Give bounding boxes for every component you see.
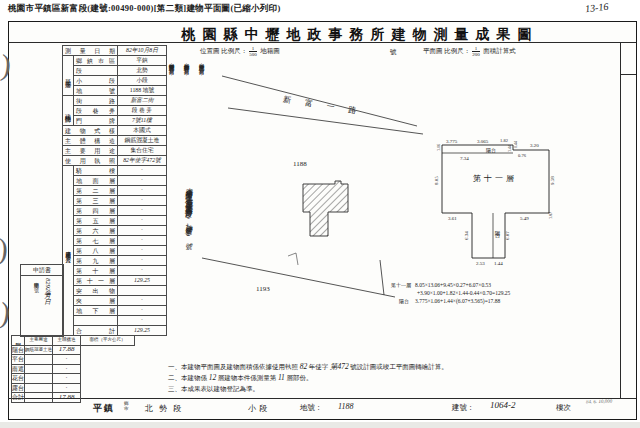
floor-plan-outline bbox=[442, 145, 549, 258]
floor-row: 建築面積（平方公尺）騎樓· bbox=[63, 166, 167, 176]
plan-map-label: 平面圖 bbox=[423, 47, 443, 54]
table-row: 使用執照82年使字472號 bbox=[63, 156, 167, 166]
annex-use: 露台 bbox=[12, 383, 25, 393]
annex-structure bbox=[25, 383, 53, 393]
annex-use: 平台 bbox=[12, 355, 25, 365]
bottom-building-label: 建號： bbox=[452, 403, 475, 413]
note-line: 一、本建物平面圖及建物面積係依據使用執照 82 年使字 第472 號設計圖或竣工… bbox=[168, 361, 613, 372]
annex-structure bbox=[25, 355, 53, 365]
dim-left: 8.05 bbox=[434, 176, 439, 185]
bottom-building-number: 1064-2 bbox=[490, 400, 516, 410]
cadastre-map-label: 地籍圖 bbox=[260, 47, 280, 54]
annex-use: 陽台 bbox=[12, 345, 25, 355]
floor-row: 第八層· bbox=[63, 246, 167, 256]
annex-area: · bbox=[53, 355, 81, 365]
dim-right-step: 1.87 bbox=[548, 212, 553, 219]
dim-tab-right: 6.07 bbox=[505, 231, 510, 240]
right-box-line bbox=[620, 74, 636, 75]
dim-balcony-depth: 1.44 bbox=[507, 145, 512, 152]
floor-row: 第四層· bbox=[63, 206, 167, 216]
floor-label: 第九層 bbox=[74, 256, 118, 266]
table-row: 主要用途集合住宅 bbox=[63, 146, 167, 156]
floor-label: 夾層 bbox=[74, 296, 118, 306]
area-calc-label: 面積計算式 bbox=[483, 47, 516, 54]
floor-area-value: · bbox=[118, 296, 167, 306]
field-value: 集合住宅 bbox=[118, 146, 167, 156]
annex-structure: 鋼筋混凝土造 bbox=[25, 345, 53, 355]
field-value: 7號11樓 bbox=[118, 116, 167, 126]
floor-area-value: · bbox=[118, 256, 167, 266]
floor-area-value: · bbox=[118, 316, 167, 326]
field-label: 使用執照 bbox=[63, 156, 118, 166]
table-row: 建物式樣本國式 bbox=[63, 126, 167, 136]
dim-tab-bottom1: 2.53 bbox=[476, 261, 485, 266]
floor-area-value: · bbox=[118, 186, 167, 196]
plan-scale-header: 平面圖 比例尺：1200 面積計算式 bbox=[423, 46, 516, 57]
floor-area-value: · bbox=[118, 266, 167, 276]
field-label: 街路 bbox=[74, 96, 118, 106]
table-row: 小段小段 bbox=[63, 76, 167, 86]
note-text: 本建物係 bbox=[181, 374, 209, 381]
floor-label: 合計 bbox=[74, 326, 118, 336]
dim-tab-bottom2: 1.44 bbox=[494, 261, 503, 266]
door-group-label: 建物門牌 bbox=[63, 96, 74, 126]
field-label: 小段 bbox=[74, 76, 118, 86]
floor-row: 合計129.25 bbox=[63, 326, 167, 336]
note-text: 本成果表以建物登記為準。 bbox=[181, 385, 259, 392]
balcony-top-label: 陽台 bbox=[486, 147, 496, 154]
dim-right: 9.58 bbox=[550, 176, 555, 185]
floor-area-value: · bbox=[118, 176, 167, 186]
location-scale-header: 位置圖 比例尺：1500 地籍圖 bbox=[200, 46, 280, 57]
field-label: 段巷弄 bbox=[74, 106, 118, 116]
dim-tab-left: 6.34 bbox=[464, 231, 469, 240]
parcel-number-1193: 1193 bbox=[256, 285, 270, 293]
floor-row: 第九層· bbox=[63, 256, 167, 266]
formula-label-balcony: 陽台 bbox=[399, 298, 409, 305]
boundary-corner-mark bbox=[288, 253, 298, 265]
floor-row: 第七層· bbox=[63, 236, 167, 246]
annex-use: 合計 bbox=[12, 393, 25, 403]
parcel-number-1188: 1188 bbox=[293, 160, 307, 168]
floor-area-value bbox=[118, 286, 167, 296]
dim-inner-top: 7.34 bbox=[460, 156, 469, 161]
dim-strip-height: 1.06 bbox=[436, 144, 441, 151]
floor-label: 第八層 bbox=[74, 246, 118, 256]
dim-top1: 3.775 bbox=[446, 139, 458, 144]
floor-label: 騎樓 bbox=[74, 166, 118, 176]
table-row: 主體構造鋼筋混凝土造 bbox=[63, 136, 167, 146]
annex-use: 雨遮 bbox=[12, 364, 25, 374]
dim-step: 0.44 bbox=[513, 141, 518, 148]
bottom-township-units: 鄉市 bbox=[124, 401, 129, 411]
floor-row: · bbox=[63, 316, 167, 326]
plan-scale-label: 比例尺： bbox=[444, 47, 470, 54]
table-row: 段巷弄段 巷 弄 bbox=[63, 106, 167, 116]
dim-bottom-right: 5.49 bbox=[520, 216, 529, 221]
location-scale-fraction: 1500 bbox=[249, 46, 257, 57]
location-map-label: 位置圖 bbox=[200, 47, 220, 54]
table-row: 基地座落鄉鎮市區平鎮 bbox=[63, 56, 167, 66]
note-text: 層建物本件係測量第 bbox=[216, 374, 278, 381]
note-text: 號設計圖或竣工平面圖轉繪計算。 bbox=[349, 363, 448, 370]
annex-structure bbox=[25, 374, 53, 384]
field-value: 新富二街 bbox=[118, 96, 167, 106]
title-divider-line bbox=[8, 42, 636, 43]
survey-date-label: 測量日期 bbox=[63, 46, 118, 56]
annex-area: · bbox=[53, 383, 81, 393]
floor-label: 地下層 bbox=[74, 306, 118, 316]
floor-row: 第六層· bbox=[63, 226, 167, 236]
field-label: 建物式樣 bbox=[63, 126, 118, 136]
floor-row: 夾層· bbox=[63, 296, 167, 306]
annex-row: 露台· bbox=[12, 383, 135, 393]
table-row: 建物門牌街路新富二街 bbox=[63, 96, 167, 106]
field-label: 主體構造 bbox=[63, 136, 118, 146]
print-run-info: 84. 6. 10,000 bbox=[586, 399, 612, 405]
field-value: 平鎮 bbox=[118, 56, 167, 66]
floor-area-value: · bbox=[118, 206, 167, 216]
floor-area-value: · bbox=[118, 236, 167, 246]
note-line: 二、本建物係 12 層建物本件係測量第 11 層部份。 bbox=[168, 372, 613, 383]
floor-label: 第十層 bbox=[74, 266, 118, 276]
floor-row: 地面層· bbox=[63, 176, 167, 186]
floor-area-value: · bbox=[118, 196, 167, 206]
floor-label: 第三層 bbox=[74, 196, 118, 206]
table-row: 測量日期82年10月8日 bbox=[63, 46, 167, 56]
application-title: 申請書 bbox=[21, 265, 63, 276]
field-value: 北勢 bbox=[118, 66, 167, 76]
field-label: 主要用途 bbox=[63, 146, 118, 156]
print-header: 桃園市平鎮區新富段(建號:00490-000)[第二類]建物平面圖(已縮小列印) bbox=[8, 3, 281, 15]
field-value: 段 巷 弄 bbox=[118, 106, 167, 116]
note-text: 第472 bbox=[330, 362, 349, 371]
survey-form-table: 測量日期82年10月8日 基地座落鄉鎮市區平鎮 段北勢 小段小段 地號1188 … bbox=[62, 45, 167, 336]
floor-label: 地面層 bbox=[74, 176, 118, 186]
application-doc-no: 中地建字第 號 bbox=[33, 278, 39, 336]
field-value: 鋼筋混凝土造 bbox=[118, 136, 167, 146]
scanned-survey-document: { "print_header": "桃園市平鎮區新富段(建號:00490-00… bbox=[0, 0, 640, 428]
floor-row: 地下層· bbox=[63, 306, 167, 316]
parcel-boundary-line bbox=[202, 258, 395, 297]
site-group-label: 基地座落 bbox=[63, 56, 74, 96]
plan-scale-fraction: 1200 bbox=[472, 46, 480, 57]
bottom-parcel-number: 1188 bbox=[338, 402, 353, 411]
floor-area-value: · bbox=[118, 246, 167, 256]
dim-top3: 1.82 bbox=[500, 138, 508, 143]
floor-area-rows: 建築面積（平方公尺）騎樓·地面層·第二層·第三層·第四層·第五層·第六層·第七層… bbox=[63, 166, 167, 336]
road-edge-line bbox=[228, 108, 423, 134]
floor-label: 第十一層 bbox=[74, 276, 118, 286]
field-label: 地號 bbox=[74, 86, 118, 96]
floor-row: 第五層· bbox=[63, 216, 167, 226]
field-label: 門牌 bbox=[74, 116, 118, 126]
field-value: 1188 地號 bbox=[118, 86, 167, 96]
table-row: 門牌7號11樓 bbox=[63, 116, 167, 126]
survey-date-value: 82年10月8日 bbox=[118, 46, 167, 56]
floor-area-value: 129.25 bbox=[118, 326, 167, 336]
note-text: 12 bbox=[209, 373, 217, 382]
application-date: 82年9月27日 bbox=[43, 278, 52, 336]
table-row: 段北勢 bbox=[63, 66, 167, 76]
floor-area-value: · bbox=[118, 306, 167, 316]
page-edge-shadow bbox=[0, 422, 640, 428]
field-label: 鄉鎮市區 bbox=[74, 56, 118, 66]
field-value: 小段 bbox=[118, 76, 167, 86]
annex-row: 合計17.88 bbox=[12, 393, 135, 403]
dim-bottom-left: 3.61 bbox=[448, 216, 457, 221]
dim-top4: 0.76 bbox=[518, 153, 527, 158]
annex-area: · bbox=[53, 364, 81, 374]
annex-row: 花台· bbox=[12, 374, 135, 384]
bottom-section: 北勢段 bbox=[145, 403, 187, 414]
annex-row: 陽台鋼筋混凝土造17.88 bbox=[12, 345, 135, 355]
parcel-boundary-line bbox=[380, 260, 384, 295]
note-line: 三、本成果表以建物登記為準。 bbox=[168, 383, 613, 394]
bottom-subsection: 小段 bbox=[248, 403, 270, 414]
field-value: 本國式 bbox=[118, 126, 167, 136]
annex-area: 17.88 bbox=[53, 345, 81, 355]
handwritten-corner-mark: 13-16 bbox=[584, 1, 608, 14]
floor-row: 第二層· bbox=[63, 186, 167, 196]
note-text: 82 bbox=[300, 362, 308, 371]
floor-row: 第十一層129.25 bbox=[63, 276, 167, 286]
road-name-label: 新 富 一 路 bbox=[283, 95, 363, 116]
annex-area: · bbox=[53, 374, 81, 384]
cadastre-no-label: 號 bbox=[390, 48, 397, 57]
note-number: 三、 bbox=[168, 385, 181, 392]
floor-label: 第二層 bbox=[74, 186, 118, 196]
note-text: 本建物平面圖及建物面積係依據使用執照 bbox=[181, 363, 300, 370]
field-value: 82年使字472號 bbox=[118, 156, 167, 166]
note-text: 層部份。 bbox=[285, 374, 313, 381]
scale-label: 比例尺： bbox=[221, 47, 247, 54]
application-box: 申請書 82年9月27日 中地建字第 號 bbox=[20, 264, 64, 337]
annex-header-area: 面積（平方公尺） bbox=[81, 336, 135, 346]
bottom-unit-char: 市 bbox=[124, 406, 129, 411]
annex-building-table: 附屬建物 主要用途 主體構造 面積（平方公尺） 陽台鋼筋混凝土造17.88平台·… bbox=[11, 335, 135, 403]
formula-balcony: 3.775×1.06+1.44×(6.07+3.565)=17.88 bbox=[415, 298, 500, 305]
formula-floor11-line2: +3.90×1.00+1.82×1.44-0.44×0.70=129.25 bbox=[417, 290, 511, 296]
floor-area-value: · bbox=[118, 216, 167, 226]
floor-area-value: · bbox=[118, 226, 167, 236]
note-text: 11 bbox=[278, 373, 285, 382]
bottom-township: 平鎮 bbox=[93, 402, 115, 415]
note-text: 年使字 bbox=[307, 363, 330, 370]
building-footprint bbox=[303, 181, 348, 236]
note-number: 一、 bbox=[168, 363, 181, 370]
bottom-floor-label: 樓次 bbox=[556, 403, 571, 413]
annex-area: 17.88 bbox=[53, 393, 81, 403]
floor-row: 第三層· bbox=[63, 196, 167, 206]
floor-area-value: 129.25 bbox=[118, 276, 167, 286]
floor-label: 第七層 bbox=[74, 236, 118, 246]
annex-row: 雨遮· bbox=[12, 364, 135, 374]
map-and-plan-drawing: 新 富 一 路 1188 1193 3.775 1.06 3.065 1.82 … bbox=[165, 58, 615, 398]
floor-label: 第四層 bbox=[74, 206, 118, 216]
formula-floor11-line1: 8.05×13.06+9.45×0.27+6.07×0.53 bbox=[415, 282, 491, 288]
annex-row: 平台· bbox=[12, 355, 135, 365]
notes-section: 一、本建物平面圖及建物面積係依據使用執照 82 年使字 第472 號設計圖或竣工… bbox=[168, 361, 613, 394]
dim-top2: 3.065 bbox=[477, 139, 489, 144]
formula-label-floor11: 第十一層 bbox=[391, 282, 411, 288]
table-row: 地號1188 地號 bbox=[63, 86, 167, 96]
floor-area-value: · bbox=[118, 166, 167, 176]
floor-label: 第五層 bbox=[74, 216, 118, 226]
field-label: 段 bbox=[74, 66, 118, 76]
floor-plan-center-label: 第十一層 bbox=[473, 174, 517, 183]
annex-structure bbox=[25, 364, 53, 374]
building-area-group-label: 建築面積（平方公尺） bbox=[63, 166, 74, 336]
right-column-line bbox=[620, 42, 621, 398]
annex-structure bbox=[25, 393, 53, 403]
floor-row: 第十層· bbox=[63, 266, 167, 276]
floor-label bbox=[74, 316, 118, 326]
bottom-parcel-label: 地號： bbox=[300, 403, 323, 413]
annex-use: 花台 bbox=[12, 374, 25, 384]
dim-top5: 3.20 bbox=[530, 143, 539, 148]
annex-rows: 陽台鋼筋混凝土造17.88平台·雨遮·花台·露台·合計17.88 bbox=[12, 345, 135, 402]
floor-label: 突出物 bbox=[74, 286, 118, 296]
note-number: 二、 bbox=[168, 374, 181, 381]
floor-label: 第六層 bbox=[74, 226, 118, 236]
floor-row: 突出物 bbox=[63, 286, 167, 296]
